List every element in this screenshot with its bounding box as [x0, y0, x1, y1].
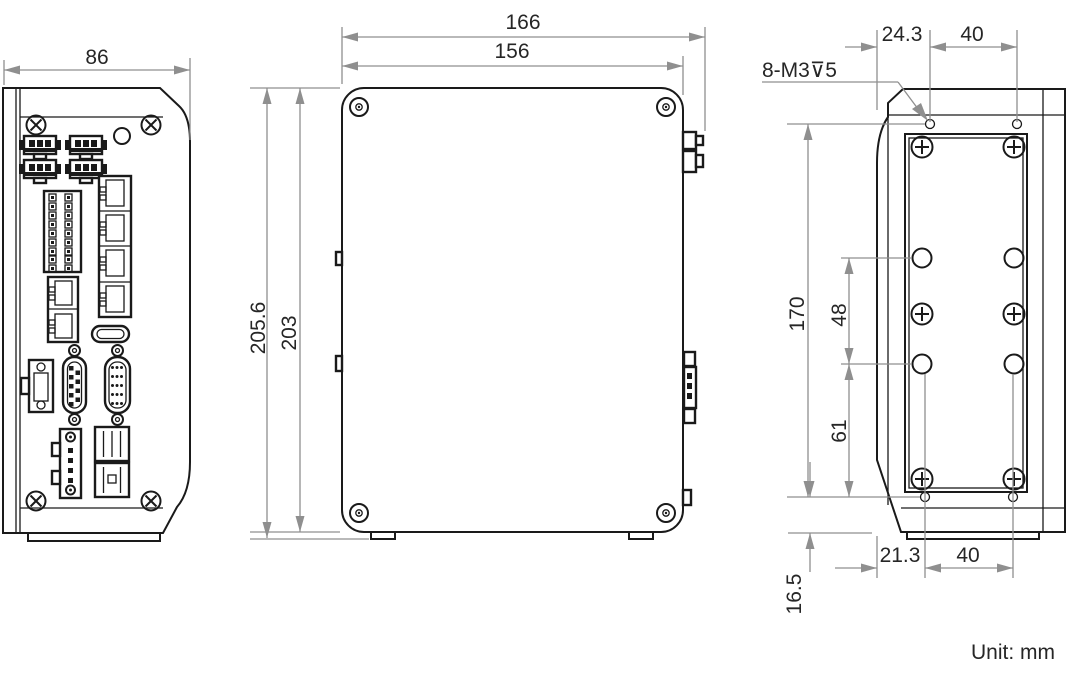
dim-label-203: 203 — [278, 315, 301, 350]
dim-label-205-6: 205.6 — [247, 302, 270, 355]
back-view — [877, 89, 1065, 539]
dim-label-166: 166 — [505, 11, 540, 34]
dim-label-24-3: 24.3 — [882, 23, 923, 46]
dim-label-170: 170 — [786, 296, 809, 331]
back-foot — [907, 532, 1039, 539]
usb-ports — [95, 427, 129, 497]
terminal-block — [44, 191, 81, 272]
dim-label-48: 48 — [828, 303, 851, 326]
front-view — [3, 88, 190, 541]
dim-label-156: 156 — [494, 40, 529, 63]
thread-callout-label: 8-M3⊽5 — [762, 59, 837, 82]
side-panel-outline — [342, 88, 683, 532]
front-foot — [28, 533, 160, 541]
dimension-drawing-page: 86 16 — [0, 0, 1081, 678]
dual-jack-ports — [48, 277, 78, 342]
dim-label-61: 61 — [828, 419, 851, 442]
dim-label-86: 86 — [85, 46, 108, 69]
dim-label-16-5: 16.5 — [783, 574, 806, 615]
engineering-drawing: 86 16 — [0, 0, 1081, 678]
hdmi-port — [92, 326, 129, 342]
ethernet-ports — [99, 176, 131, 317]
unit-label: Unit: mm — [971, 641, 1055, 664]
dim-label-21-3: 21.3 — [880, 544, 921, 567]
side-view — [336, 88, 703, 539]
side-foot — [629, 532, 653, 539]
side-foot — [371, 532, 395, 539]
side-right-connectors — [683, 132, 703, 505]
dim-label-40-top: 40 — [960, 23, 983, 46]
dim-label-40-bottom: 40 — [956, 544, 979, 567]
